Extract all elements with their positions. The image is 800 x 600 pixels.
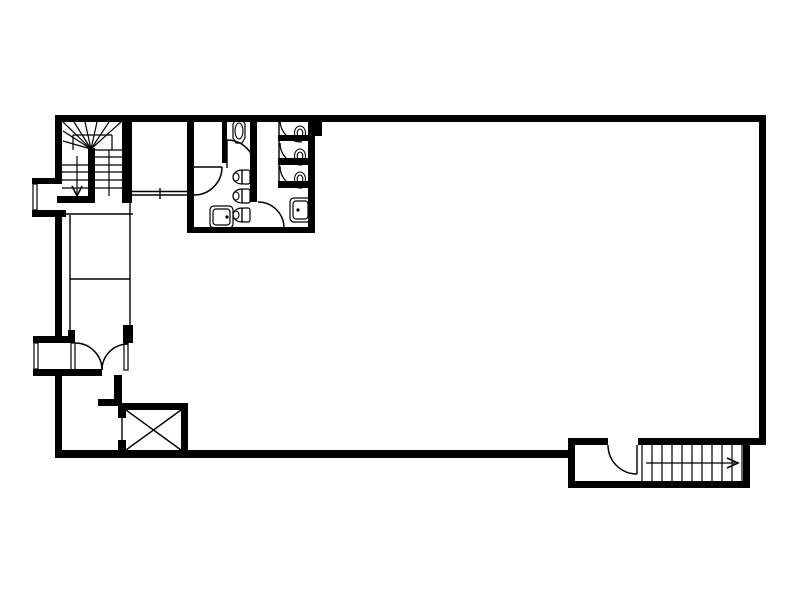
wall-segment (743, 438, 750, 488)
toilet-tanks (242, 170, 250, 222)
wall-segment (33, 369, 102, 376)
toilet-tank (242, 170, 250, 184)
wall-segment (122, 115, 132, 203)
wall-segment (315, 115, 322, 136)
door-arc (194, 167, 222, 195)
fixture-ellipse (233, 192, 239, 200)
door-arc (608, 445, 637, 474)
door-arc (258, 202, 284, 228)
wall-segment (759, 115, 766, 445)
wall-segment (118, 403, 126, 418)
window-pane (34, 343, 38, 369)
toilet-tank (242, 189, 250, 203)
wall-segment (568, 438, 575, 488)
wall-segment (114, 375, 122, 401)
wall-segment (187, 115, 194, 233)
lower-stair-treads (642, 445, 742, 481)
wall-segment (33, 336, 75, 343)
stair-tread-line (63, 131, 91, 149)
wall-segment (32, 210, 66, 217)
wall-segment (88, 148, 95, 203)
window-pane (33, 184, 37, 210)
wall-segment (222, 115, 227, 163)
toilet-tank (242, 208, 250, 222)
door-leaf (71, 343, 75, 370)
wall-segment (68, 330, 75, 337)
wall-segment (55, 375, 62, 458)
wall-segment (118, 440, 126, 452)
toilet-bowl (233, 208, 242, 222)
wall-segment (181, 403, 188, 450)
fixture-ellipse (233, 211, 239, 219)
wall-segment (187, 227, 315, 233)
wall-segment (32, 178, 62, 184)
fixture-ellipse (235, 123, 243, 139)
floor-plan-canvas (0, 0, 800, 600)
wall-segment (118, 403, 188, 410)
toilet-bowls (233, 170, 242, 222)
wall-segment (568, 481, 750, 488)
toilet-bowl (233, 170, 242, 184)
wall-segments (32, 115, 766, 488)
toilet-bowl (233, 189, 242, 203)
door-arc (75, 343, 102, 370)
wall-segment (123, 325, 133, 343)
wall-segment (55, 216, 62, 337)
door-leaves (71, 343, 128, 370)
fixture-ellipse (233, 173, 239, 181)
stair-direction-arrowheads (72, 186, 738, 468)
wall-segment (55, 115, 62, 180)
sink-outline (293, 201, 308, 219)
wall-segment (55, 115, 766, 122)
door-leaf (124, 343, 128, 370)
elevator-shaft-x (122, 410, 181, 450)
partition-thin-lines (62, 122, 637, 474)
wall-segment (55, 450, 568, 458)
toilet-stall-arcs (280, 120, 302, 188)
floor-plan-page (0, 0, 800, 600)
sink-drain-dot (296, 208, 299, 211)
sink-drain-dot (225, 215, 228, 218)
